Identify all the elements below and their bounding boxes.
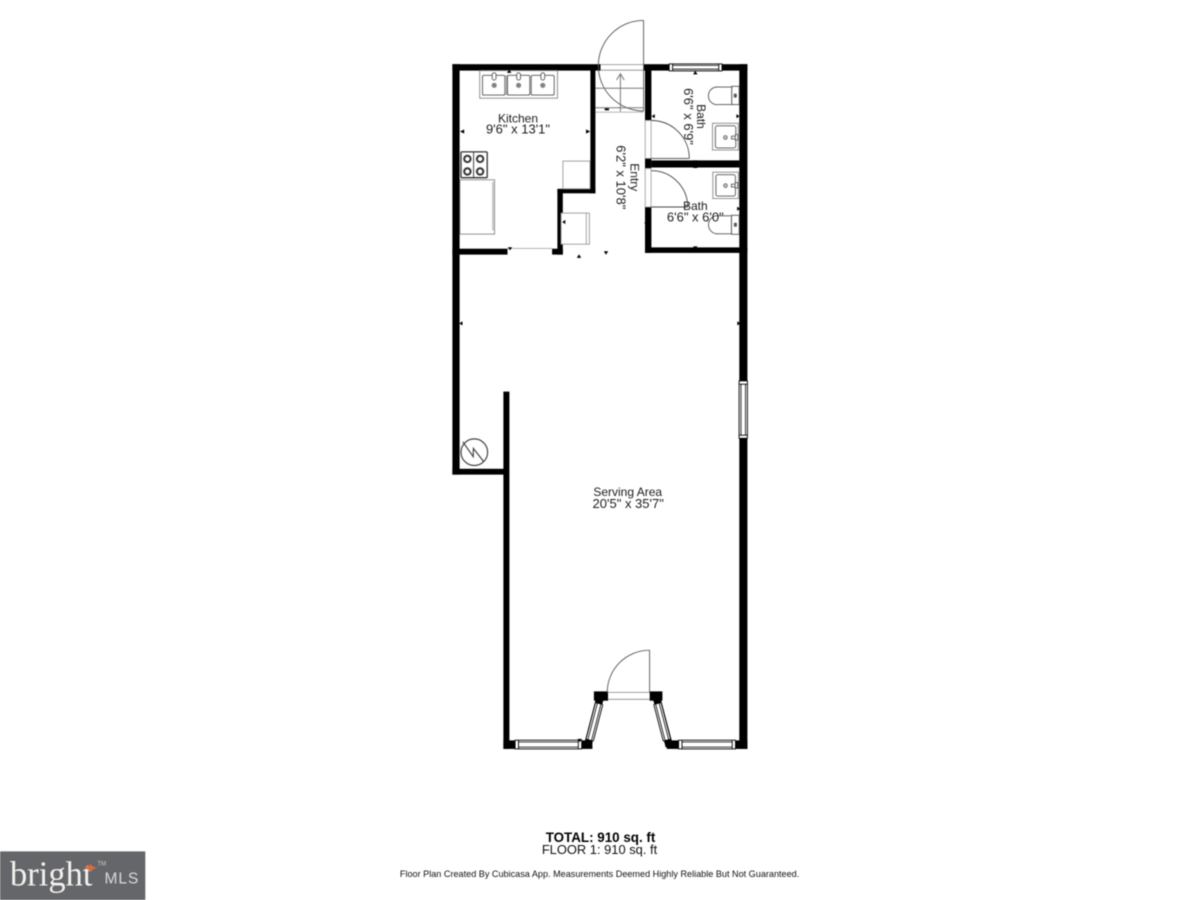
svg-text:Floor Plan Created By Cubicasa: Floor Plan Created By Cubicasa App. Meas… — [400, 869, 799, 879]
svg-text:FLOOR 1: 910 sq. ft: FLOOR 1: 910 sq. ft — [542, 842, 658, 857]
svg-text:6'6" x 6'9": 6'6" x 6'9" — [681, 88, 696, 145]
svg-text:bright: bright — [10, 855, 93, 893]
svg-text:20'5" x 35'7": 20'5" x 35'7" — [593, 496, 665, 511]
svg-text:TM: TM — [98, 862, 107, 868]
svg-text:6'2" x 10'8": 6'2" x 10'8" — [614, 145, 629, 209]
svg-text:9'6" x 13'1": 9'6" x 13'1" — [486, 122, 550, 137]
svg-text:MLS: MLS — [105, 871, 140, 888]
svg-text:6'6" x 6'0": 6'6" x 6'0" — [667, 210, 724, 225]
